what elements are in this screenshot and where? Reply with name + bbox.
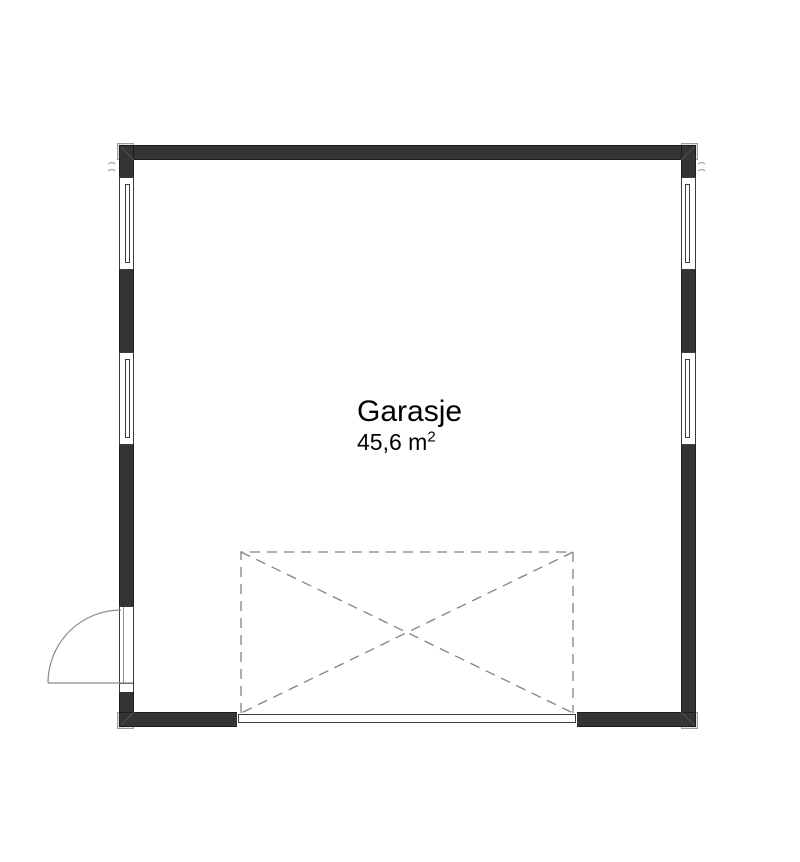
room-area-value: 45,6 m <box>357 429 427 455</box>
room-area-label: 45,6 m2 <box>357 429 436 456</box>
window-glass-line <box>125 359 130 438</box>
window-right-upper <box>681 177 696 270</box>
window-right-lower <box>681 352 696 445</box>
parking-area-outline <box>241 552 573 713</box>
wall-top <box>119 145 696 160</box>
window-glass-line <box>685 359 690 438</box>
door-frame-line <box>123 607 124 684</box>
window-glass-line <box>685 184 690 263</box>
corner-mark-top-right <box>698 163 705 172</box>
floor-plan-canvas: Garasje 45,6 m2 <box>0 0 800 862</box>
door-swing-arc <box>48 610 121 683</box>
parking-area-diagonal-1 <box>241 552 573 713</box>
parking-area-diagonal-2 <box>241 552 573 713</box>
room-name-label: Garasje <box>357 395 462 429</box>
window-left-upper <box>119 177 134 270</box>
window-glass-line <box>125 184 130 263</box>
door-opening <box>119 606 134 692</box>
room-area-superscript: 2 <box>427 428 435 445</box>
window-left-lower <box>119 352 134 445</box>
door-threshold-line <box>120 683 133 684</box>
corner-mark-top-left <box>108 163 115 172</box>
garage-door-panel <box>238 714 576 723</box>
